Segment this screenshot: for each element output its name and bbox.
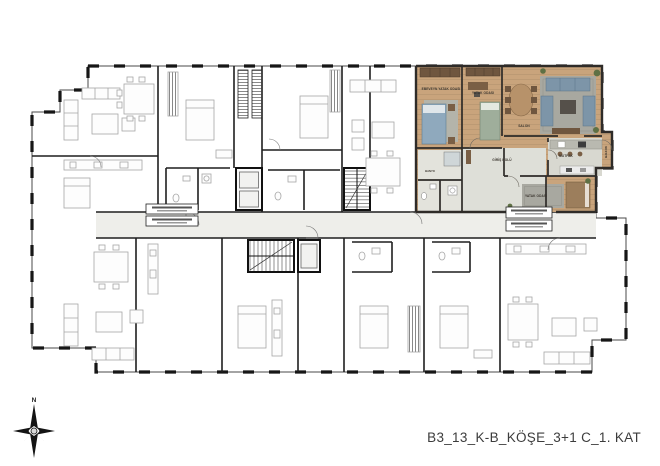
- room-label-salon: SALON: [518, 124, 530, 128]
- floor-plan-page: EBEVEYN YATAK ODASI YATAK ODASI SALON Gİ…: [0, 0, 660, 466]
- room-label-balcony: BALKON: [604, 146, 608, 158]
- wardrobes: [420, 68, 500, 77]
- floor-plan-drawing: EBEVEYN YATAK ODASI YATAK ODASI SALON Gİ…: [0, 0, 660, 466]
- elevator-core-2: [298, 240, 320, 272]
- compass-north-label: N: [32, 397, 37, 404]
- stairwell-bottom: [248, 240, 294, 272]
- room-label-master-bedroom: EBEVEYN YATAK ODASI: [422, 87, 461, 91]
- room-label-bathroom: BANYO: [425, 169, 435, 173]
- room-label-kitchen: MUTFAK: [559, 154, 573, 158]
- master-bedroom-furniture: [422, 100, 458, 144]
- room-label-bedroom2: YATAK ODASI: [472, 91, 494, 95]
- highlighted-unit[interactable]: EBEVEYN YATAK ODASI YATAK ODASI SALON Gİ…: [416, 66, 612, 212]
- elevator-core: [236, 168, 262, 210]
- compass-rose: N: [13, 397, 55, 458]
- plan-caption: B3_13_K-B_KÖŞE_3+1 C_1. KAT: [427, 430, 641, 445]
- room-label-bedroom3: YATAK ODASI: [525, 194, 547, 198]
- room-label-entry-hall: GİRİŞ HOLÜ: [492, 157, 512, 162]
